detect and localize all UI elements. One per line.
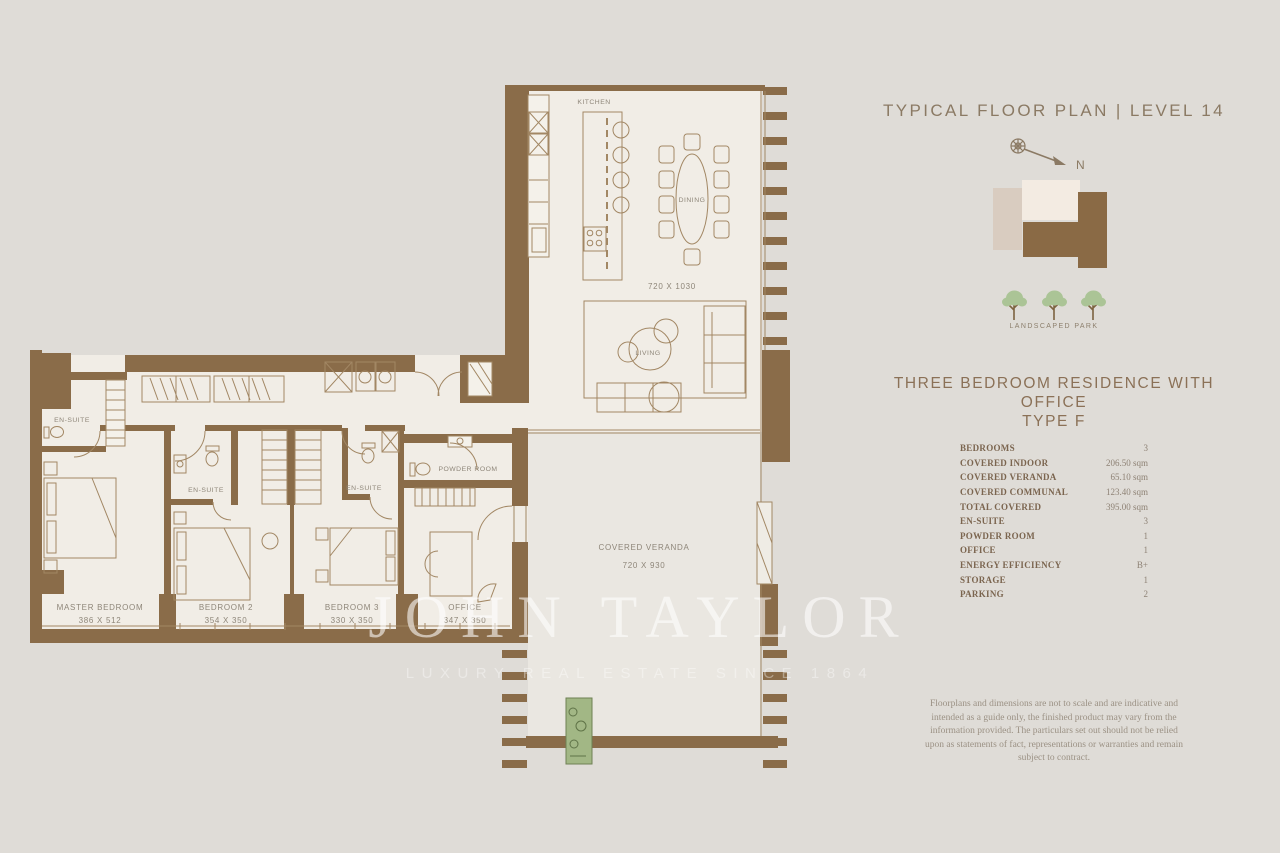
spec-value: 1: [1144, 545, 1149, 555]
spec-label: PARKING: [960, 589, 1004, 599]
ensuite-bedroom2-label: EN-SUITE: [188, 487, 224, 494]
spec-row: COVERED VERANDA65.10 sqm: [960, 470, 1148, 485]
veranda-floor: [528, 432, 760, 737]
north-label: N: [1076, 158, 1085, 172]
tree-icon: [1080, 289, 1107, 321]
compass: N: [870, 135, 1238, 173]
spec-row: COVERED COMMUNAL123.40 sqm: [960, 485, 1148, 500]
spec-value: 2: [1144, 589, 1149, 599]
spec-label: COVERED COMMUNAL: [960, 487, 1068, 497]
veranda-label: COVERED VERANDA: [599, 543, 690, 552]
disclaimer-text: Floorplans and dimensions are not to sca…: [923, 698, 1185, 766]
site-block-brown-right: [1078, 192, 1107, 268]
office-label: OFFICE: [448, 603, 482, 612]
spec-row: COVERED INDOOR206.50 sqm: [960, 456, 1148, 471]
spec-label: BEDROOMS: [960, 443, 1015, 453]
bedroom3-dims: 330 X 350: [331, 616, 374, 625]
spec-label: POWDER ROOM: [960, 531, 1035, 541]
site-block-brown-center: [1023, 222, 1078, 257]
bedroom3-label: BEDROOM 3: [325, 603, 379, 612]
ensuite-master-label: EN-SUITE: [54, 417, 90, 424]
spec-label: TOTAL COVERED: [960, 502, 1041, 512]
residence-heading-line2: TYPE F: [870, 412, 1238, 431]
spec-row: PARKING2: [960, 587, 1148, 602]
spec-value: 3: [1144, 443, 1149, 453]
powder-room-label: POWDER ROOM: [438, 466, 497, 473]
spec-label: EN-SUITE: [960, 516, 1005, 526]
spec-label: OFFICE: [960, 545, 996, 555]
tree-icon: [1001, 289, 1028, 321]
ensuite-bedroom3-label: EN-SUITE: [346, 485, 382, 492]
dining-dims: 720 X 1030: [648, 282, 696, 291]
spec-value: B+: [1137, 560, 1148, 570]
bedroom2-label: BEDROOM 2: [199, 603, 253, 612]
spec-row: ENERGY EFFICIENCYB+: [960, 558, 1148, 573]
site-block-cream: [1022, 180, 1080, 220]
planter: [566, 698, 592, 764]
bedroom2-dims: 354 X 350: [205, 616, 248, 625]
info-panel: TYPICAL FLOOR PLAN | LEVEL 14 N: [870, 95, 1238, 815]
living-label: LIVING: [635, 350, 660, 357]
spec-value: 206.50 sqm: [1106, 458, 1148, 468]
office-dims: 347 X 350: [444, 616, 487, 625]
spec-row: STORAGE1: [960, 572, 1148, 587]
landscaped-park: LANDSCAPED PARK: [870, 289, 1238, 330]
compass-icon: N: [1004, 135, 1104, 173]
north-arrow: [1053, 156, 1066, 165]
spec-row: BEDROOMS3: [960, 441, 1148, 456]
spec-label: COVERED VERANDA: [960, 472, 1057, 482]
spec-value: 1: [1144, 575, 1149, 585]
spec-row: OFFICE1: [960, 543, 1148, 558]
spec-value: 123.40 sqm: [1106, 487, 1148, 497]
floor-plan-drawing: KITCHEN DINING 720 X 1030 LIVING COVERED…: [0, 0, 810, 853]
spec-label: STORAGE: [960, 575, 1006, 585]
spec-label: COVERED INDOOR: [960, 458, 1048, 468]
park-label: LANDSCAPED PARK: [870, 323, 1238, 330]
spec-value: 65.10 sqm: [1110, 472, 1148, 482]
spec-value: 395.00 sqm: [1106, 502, 1148, 512]
site-block-beige: [993, 188, 1022, 250]
page-title: TYPICAL FLOOR PLAN | LEVEL 14: [870, 101, 1238, 121]
spec-label: ENERGY EFFICIENCY: [960, 560, 1062, 570]
floor-plan-page: KITCHEN DINING 720 X 1030 LIVING COVERED…: [0, 0, 1280, 853]
specs-table: BEDROOMS3 COVERED INDOOR206.50 sqm COVER…: [960, 441, 1148, 602]
master-bedroom-label: MASTER BEDROOM: [57, 603, 144, 612]
residence-heading-line1: THREE BEDROOM RESIDENCE WITH OFFICE: [870, 374, 1238, 412]
spec-value: 1: [1144, 531, 1149, 541]
site-plan: [870, 175, 1238, 275]
veranda-dims: 720 X 930: [623, 561, 666, 570]
residence-heading: THREE BEDROOM RESIDENCE WITH OFFICE TYPE…: [870, 374, 1238, 431]
master-bedroom-dims: 386 X 512: [79, 616, 122, 625]
kitchen-label: KITCHEN: [577, 99, 610, 106]
spec-row: POWDER ROOM1: [960, 529, 1148, 544]
spec-value: 3: [1144, 516, 1149, 526]
spec-row: TOTAL COVERED395.00 sqm: [960, 499, 1148, 514]
dining-label: DINING: [679, 197, 706, 204]
tree-icon: [1041, 289, 1068, 321]
spec-row: EN-SUITE3: [960, 514, 1148, 529]
